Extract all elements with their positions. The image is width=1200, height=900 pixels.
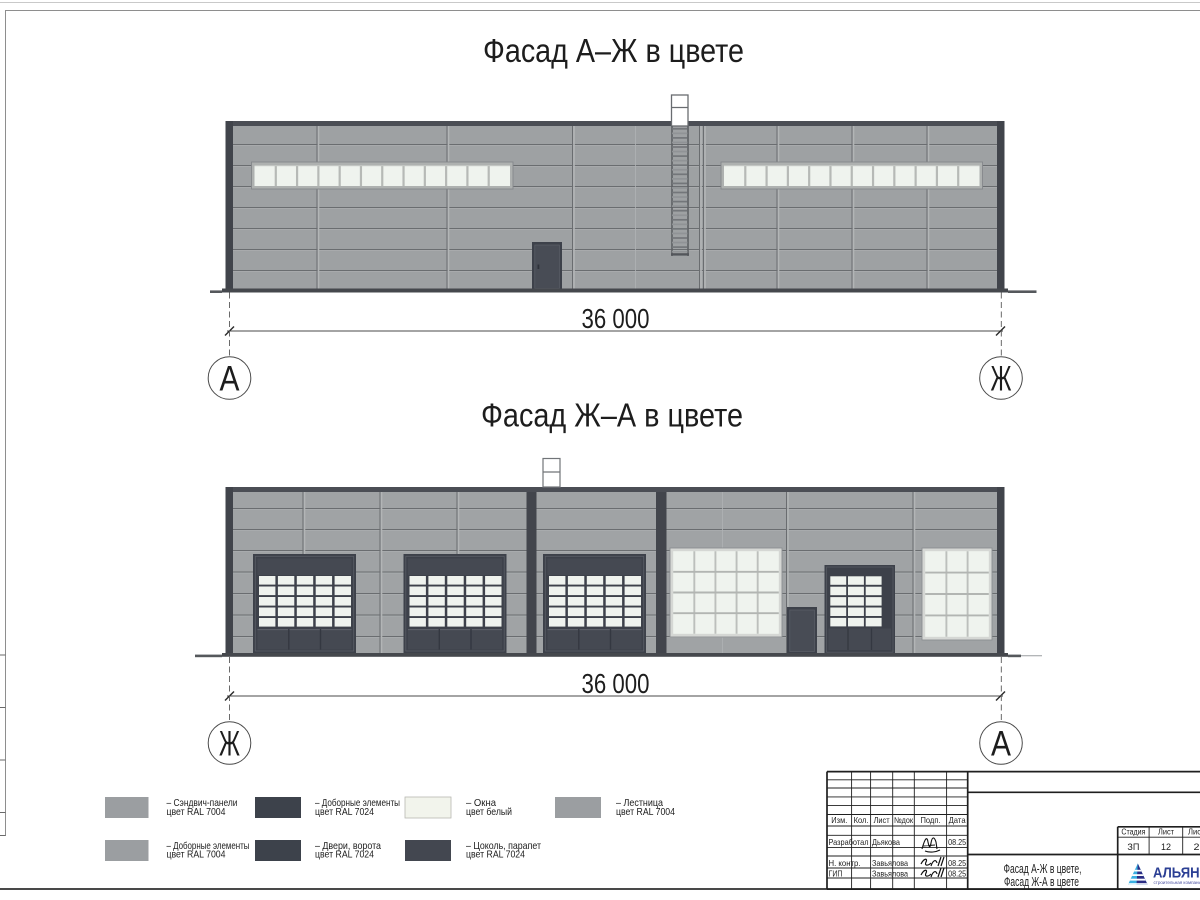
svg-text:08.25: 08.25 — [948, 858, 966, 868]
svg-text:цвет RAL 7024: цвет RAL 7024 — [466, 850, 525, 861]
svg-text:Дьякова: Дьякова — [872, 837, 900, 847]
svg-text:Ж: Ж — [991, 360, 1012, 399]
svg-text:цвет RAL 7024: цвет RAL 7024 — [315, 850, 374, 861]
svg-text:ГИП: ГИП — [829, 869, 843, 879]
svg-text:Лист: Лист — [1158, 827, 1174, 837]
svg-text:Дата: Дата — [949, 815, 966, 825]
svg-text:Н. контр.: Н. контр. — [829, 858, 861, 868]
svg-text:Изм.: Изм. — [831, 815, 847, 825]
svg-text:цвет RAL 7004: цвет RAL 7004 — [167, 807, 226, 818]
svg-text:ЗП: ЗП — [1127, 842, 1139, 853]
svg-text:Стадия: Стадия — [1121, 827, 1145, 837]
svg-text:Разработал: Разработал — [829, 837, 869, 847]
svg-text:Завьялова: Завьялова — [872, 869, 908, 879]
svg-text:цвет белый: цвет белый — [466, 806, 512, 818]
svg-text:цвет RAL 7004: цвет RAL 7004 — [167, 850, 226, 861]
svg-text:36 000: 36 000 — [582, 303, 650, 334]
svg-text:Фасад А–Ж в цвете: Фасад А–Ж в цвете — [483, 33, 744, 70]
svg-text:08.25: 08.25 — [948, 869, 966, 879]
svg-text:12: 12 — [1161, 842, 1171, 853]
svg-text:Ж: Ж — [219, 725, 240, 764]
svg-text:АЛЬЯНС: АЛЬЯНС — [1153, 866, 1200, 882]
svg-text:А: А — [991, 725, 1012, 764]
svg-text:строительная компания: строительная компания — [1154, 881, 1200, 886]
svg-text:Завьялова: Завьялова — [872, 858, 908, 868]
svg-text:Фасад Ж–А в цвете: Фасад Ж–А в цвете — [481, 398, 743, 435]
svg-text:цвет RAL 7024: цвет RAL 7024 — [315, 807, 374, 818]
svg-text:Лист: Лист — [874, 815, 890, 825]
svg-text:Кол.: Кол. — [854, 815, 869, 825]
svg-text:08.25: 08.25 — [948, 837, 966, 847]
svg-text:2: 2 — [1194, 842, 1200, 853]
svg-text:Подп.: Подп. — [921, 815, 941, 825]
svg-text:№док: №док — [894, 815, 913, 825]
svg-text:Фасад Ж-А в цвете: Фасад Ж-А в цвете — [1004, 874, 1079, 889]
svg-text:Лис: Лис — [1188, 827, 1200, 837]
svg-text:цвет RAL 7004: цвет RAL 7004 — [616, 807, 675, 818]
svg-text:36 000: 36 000 — [582, 668, 650, 699]
svg-text:А: А — [220, 360, 241, 399]
